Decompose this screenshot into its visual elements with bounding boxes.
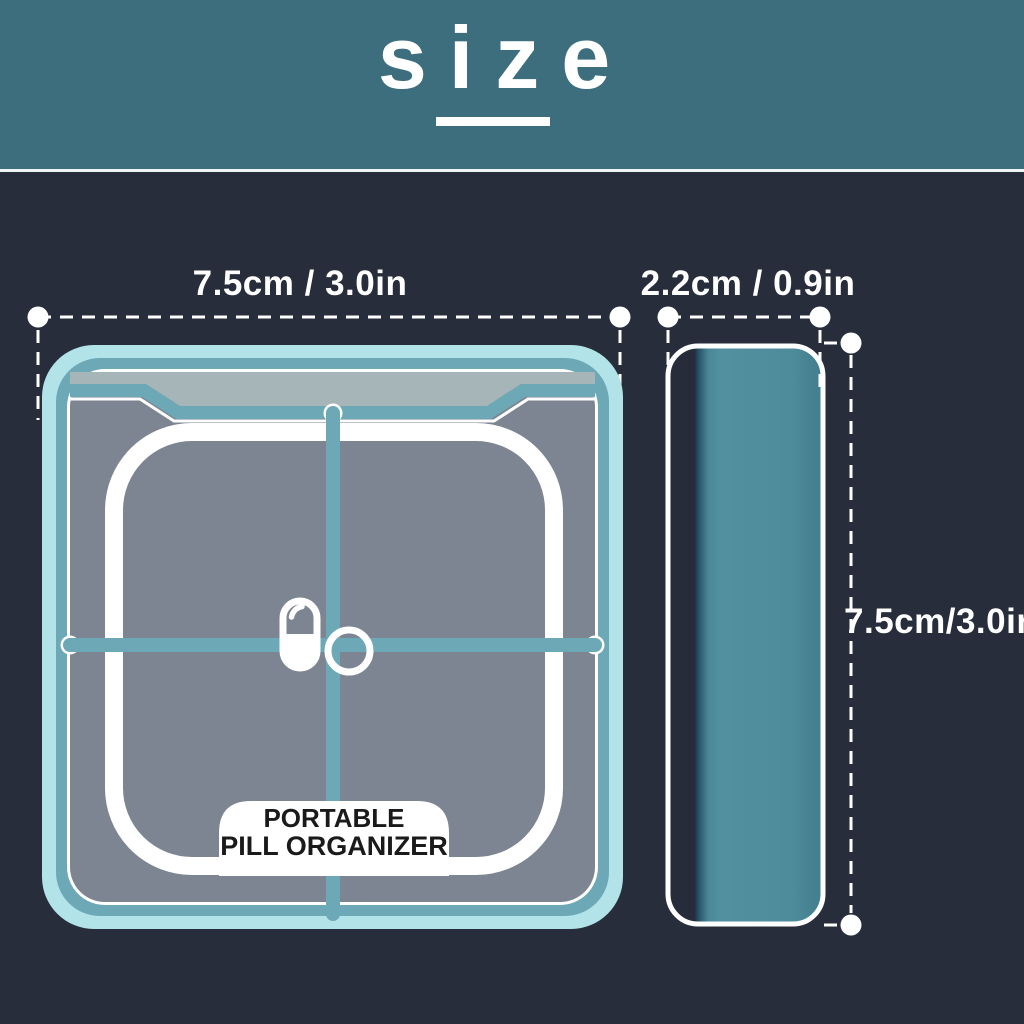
pill-organizer-side-view [668, 346, 823, 924]
dimension-endpoint-dot [28, 307, 49, 328]
product-label-line2: PILL ORGANIZER [219, 831, 449, 862]
dimension-endpoint-dot [610, 307, 631, 328]
side-view-width-label: 2.2cm / 0.9in [598, 264, 898, 304]
product-label-line1: PORTABLE [219, 803, 449, 834]
size-infographic: size [0, 0, 1024, 1024]
size-diagram [0, 0, 1024, 1024]
side-view-width-dimension [658, 307, 831, 328]
dimension-endpoint-dot [841, 333, 862, 354]
dimension-endpoint-dot [841, 915, 862, 936]
dimension-endpoint-dot [810, 307, 831, 328]
side-view-height-label: 7.5cm/3.0in [844, 602, 1024, 642]
dimension-endpoint-dot [658, 307, 679, 328]
top-view-width-label: 7.5cm / 3.0in [100, 264, 500, 304]
